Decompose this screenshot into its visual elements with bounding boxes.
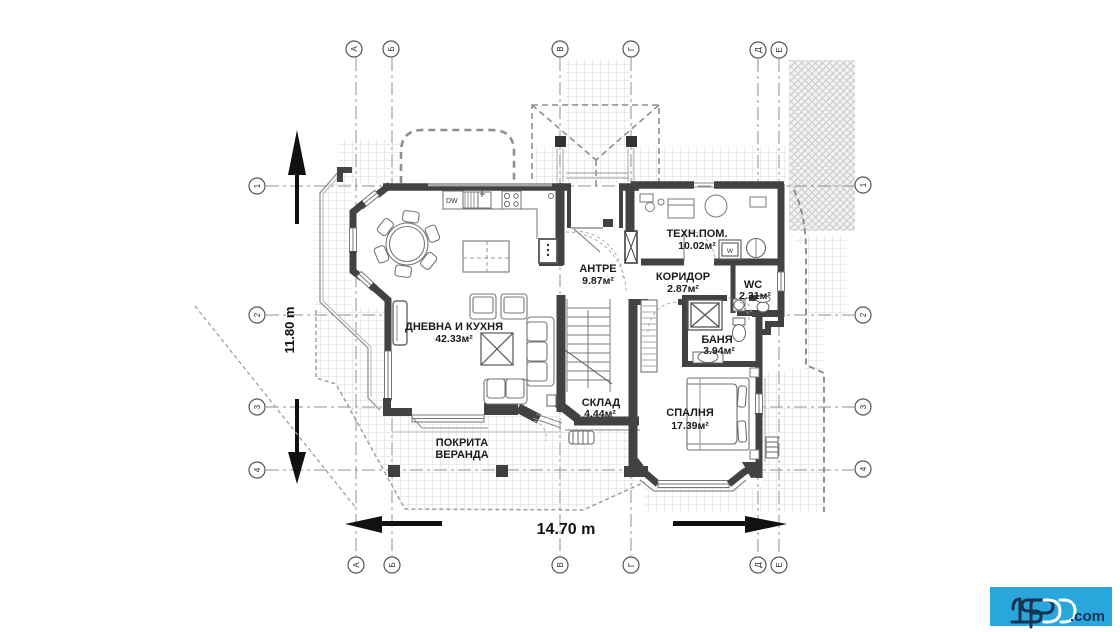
svg-text:4.44м²: 4.44м² [584,408,616,420]
svg-text:Е: Е [775,562,784,567]
svg-text:Д: Д [754,562,763,568]
svg-text:14.70 m: 14.70 m [537,521,596,538]
svg-text:КОРИДОР: КОРИДОР [656,271,710,283]
svg-text:Г: Г [627,562,636,567]
svg-text:2.87м²: 2.87м² [667,283,699,295]
svg-text:2.31м²: 2.31м² [739,290,771,302]
svg-text:ТЕХН.ПОМ.: ТЕХН.ПОМ. [666,228,727,240]
svg-text:СПАЛНЯ: СПАЛНЯ [666,407,714,419]
svg-text:3: 3 [253,404,262,409]
svg-text:1: 1 [253,183,262,188]
svg-text:2: 2 [253,312,262,317]
svg-text:3: 3 [859,404,868,409]
svg-text:.com: .com [1070,608,1105,625]
svg-text:1: 1 [859,182,868,187]
svg-text:DW: DW [446,198,458,205]
svg-text:11.80 m: 11.80 m [282,307,297,354]
svg-text:В: В [556,562,565,567]
svg-text:4: 4 [859,466,868,471]
svg-text:9.87м²: 9.87м² [582,275,614,287]
svg-text:4: 4 [253,467,262,472]
svg-text:Д: Д [754,47,763,53]
svg-text:ПОКРИТА: ПОКРИТА [436,437,488,449]
svg-text:Г: Г [627,46,636,51]
svg-text:В: В [556,46,565,51]
svg-text:АНТРЕ: АНТРЕ [579,263,616,275]
svg-text:3.94м²: 3.94м² [703,345,735,357]
svg-text:А: А [350,46,359,52]
svg-text:Б: Б [388,562,397,567]
svg-text:ВЕРАНДА: ВЕРАНДА [435,449,488,461]
svg-text:Е: Е [775,47,784,52]
svg-text:2: 2 [859,312,868,317]
svg-text:10.02м²: 10.02м² [678,240,716,252]
svg-text:Б: Б [387,46,396,51]
svg-text:42.33м²: 42.33м² [435,333,473,345]
svg-text:W: W [727,248,734,255]
svg-text:17.39м²: 17.39м² [671,420,709,432]
svg-text:А: А [352,562,361,568]
svg-text:ДНЕВНА И КУХНЯ: ДНЕВНА И КУХНЯ [405,321,503,333]
